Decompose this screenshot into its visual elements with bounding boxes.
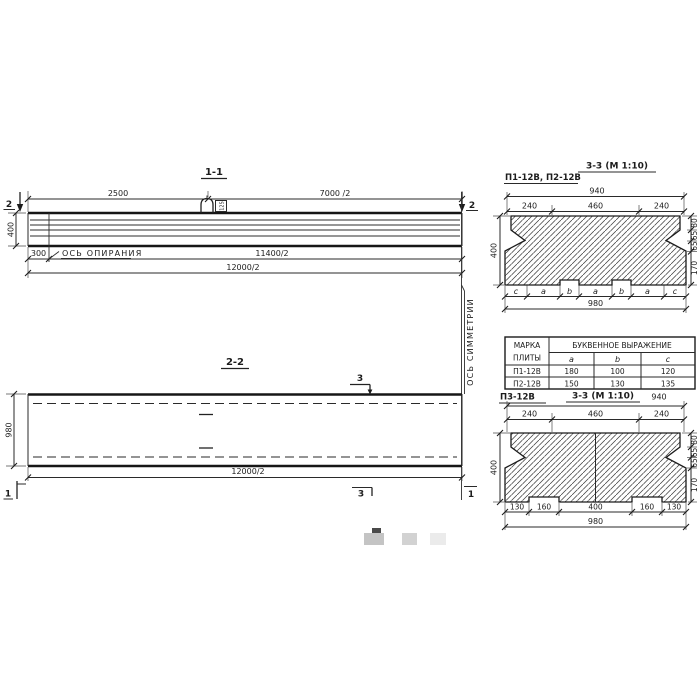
svg-text:a: a bbox=[541, 287, 546, 296]
section-1-1: 1-1 2500 7000 /2 2 2 bbox=[4, 167, 479, 278]
slab-drawing: 1-1 2500 7000 /2 2 2 bbox=[0, 0, 700, 700]
section-3-3-top: 3-3 (М 1:10) П1-12В, П2-12В 940 240 460 … bbox=[490, 162, 700, 314]
svg-text:65: 65 bbox=[690, 448, 699, 458]
svg-text:980: 980 bbox=[588, 299, 603, 308]
dim-11400-2: 11400/2 bbox=[255, 249, 288, 258]
svg-text:400: 400 bbox=[7, 222, 16, 237]
svg-text:980: 980 bbox=[5, 422, 14, 437]
dim-2500: 2500 bbox=[108, 189, 128, 198]
table-header-expression: БУКВЕННОЕ ВЫРАЖЕНИЕ bbox=[572, 341, 672, 350]
dim-row-total: 12000/2 bbox=[25, 263, 465, 276]
svg-text:c: c bbox=[673, 287, 678, 296]
svg-text:a: a bbox=[645, 287, 650, 296]
dim-row-240-460-240-bottom: 240 460 240 bbox=[504, 410, 687, 433]
svg-text:100: 100 bbox=[610, 367, 625, 376]
svg-text:2: 2 bbox=[6, 200, 12, 210]
beam-elevation bbox=[28, 213, 462, 246]
svg-text:980: 980 bbox=[588, 517, 603, 526]
dim-row-240-460-240-top: 240 460 240 bbox=[504, 202, 687, 216]
slab-plan-outline bbox=[28, 394, 462, 466]
svg-text:3: 3 bbox=[357, 374, 363, 384]
lifting-loop: 125 bbox=[201, 196, 227, 214]
dim-12000-2-plan: 12000/2 bbox=[231, 467, 264, 476]
svg-text:130: 130 bbox=[510, 503, 525, 512]
cut-arrow-icon bbox=[459, 204, 465, 212]
cut-mark-1-left: 1 bbox=[4, 481, 27, 500]
support-axis-label: ОСЬ ОПИРАНИЯ bbox=[62, 249, 142, 258]
letter-dim-row: c a b a b a c bbox=[502, 286, 689, 300]
plate-mark-p3-label: П3-12В bbox=[500, 393, 535, 403]
svg-text:b: b bbox=[619, 287, 624, 296]
svg-text:b: b bbox=[567, 287, 572, 296]
svg-text:180: 180 bbox=[564, 367, 579, 376]
blueprint-canvas: 1-1 2500 7000 /2 2 2 bbox=[0, 0, 700, 700]
leader-line bbox=[49, 252, 59, 260]
svg-text:130: 130 bbox=[667, 503, 682, 512]
dim-width-980: 980 bbox=[5, 391, 27, 469]
dim-row-plan-total: 12000/2 bbox=[25, 467, 465, 481]
svg-text:150: 150 bbox=[564, 380, 579, 389]
svg-text:2: 2 bbox=[469, 201, 475, 211]
plate-marks-label: П1-12В, П2-12В bbox=[505, 173, 581, 183]
svg-text:160: 160 bbox=[537, 503, 552, 512]
svg-text:80: 80 bbox=[690, 435, 699, 445]
cut-mark-3-top: 3 bbox=[350, 374, 372, 395]
section-1-1-title: 1-1 bbox=[205, 167, 223, 178]
svg-text:940: 940 bbox=[589, 187, 604, 196]
svg-text:П2-12В: П2-12В bbox=[513, 380, 541, 389]
section-3-3-bottom: П3-12В 3-3 (М 1:10) 940 240 460 240 bbox=[490, 392, 700, 531]
svg-text:170: 170 bbox=[690, 261, 699, 276]
svg-text:c: c bbox=[514, 287, 519, 296]
svg-text:1: 1 bbox=[468, 490, 474, 500]
cut-mark-2-left: 2 bbox=[4, 192, 24, 212]
table-header-mark-2: ПЛИТЫ bbox=[513, 354, 541, 363]
svg-text:940: 940 bbox=[651, 393, 666, 402]
dim-height-400: 400 bbox=[7, 210, 27, 249]
dim-12000-2: 12000/2 bbox=[226, 263, 259, 272]
svg-text:400: 400 bbox=[588, 503, 603, 512]
svg-text:240: 240 bbox=[522, 202, 537, 211]
section-3-3-top-title: 3-3 (М 1:10) bbox=[586, 162, 648, 172]
letter-values-table: МАРКА ПЛИТЫ БУКВЕННОЕ ВЫРАЖЕНИЕ a b c П1… bbox=[505, 337, 695, 389]
table-col-b: b bbox=[615, 355, 620, 364]
symmetry-axis-label: ОСЬ СИММЕТРИИ bbox=[466, 298, 475, 386]
cut-mark-1-right: 1 bbox=[464, 487, 477, 501]
svg-text:170: 170 bbox=[690, 478, 699, 493]
section-2-2: 2-2 3 980 bbox=[4, 357, 478, 500]
svg-text:135: 135 bbox=[661, 380, 676, 389]
table-col-c: c bbox=[666, 355, 671, 364]
svg-text:240: 240 bbox=[654, 202, 669, 211]
svg-text:3: 3 bbox=[358, 490, 364, 500]
section-3-3-bottom-title: 3-3 (М 1:10) bbox=[572, 392, 634, 402]
svg-text:160: 160 bbox=[640, 503, 655, 512]
svg-text:65: 65 bbox=[690, 458, 699, 468]
svg-text:a: a bbox=[593, 287, 598, 296]
svg-text:1: 1 bbox=[5, 490, 11, 500]
section-2-2-title: 2-2 bbox=[226, 357, 244, 368]
table-col-a: a bbox=[569, 355, 574, 364]
table-header-mark-1: МАРКА bbox=[514, 341, 541, 350]
svg-text:400: 400 bbox=[490, 460, 499, 475]
svg-text:65: 65 bbox=[690, 231, 699, 241]
svg-text:460: 460 bbox=[588, 202, 603, 211]
symmetry-axis: ОСЬ СИММЕТРИИ bbox=[462, 192, 476, 500]
dim-row-top: 2500 7000 /2 bbox=[25, 189, 465, 212]
svg-text:120: 120 bbox=[661, 367, 676, 376]
dim-300: 300 bbox=[31, 249, 46, 258]
svg-text:80: 80 bbox=[690, 218, 699, 228]
svg-text:240: 240 bbox=[654, 410, 669, 419]
dim-row-980-bottom: 980 bbox=[502, 517, 689, 530]
cut-mark-3-bottom: 3 bbox=[352, 488, 372, 500]
svg-text:65: 65 bbox=[690, 241, 699, 251]
svg-text:400: 400 bbox=[490, 243, 499, 258]
dim-7000-2: 7000 /2 bbox=[320, 189, 351, 198]
svg-text:240: 240 bbox=[522, 410, 537, 419]
hatched-cross-section-top bbox=[505, 216, 686, 285]
loop-tag-label: 125 bbox=[220, 201, 226, 211]
scan-artifact bbox=[364, 528, 446, 545]
svg-text:130: 130 bbox=[610, 380, 625, 389]
svg-text:460: 460 bbox=[588, 410, 603, 419]
svg-text:П1-12В: П1-12В bbox=[513, 367, 541, 376]
